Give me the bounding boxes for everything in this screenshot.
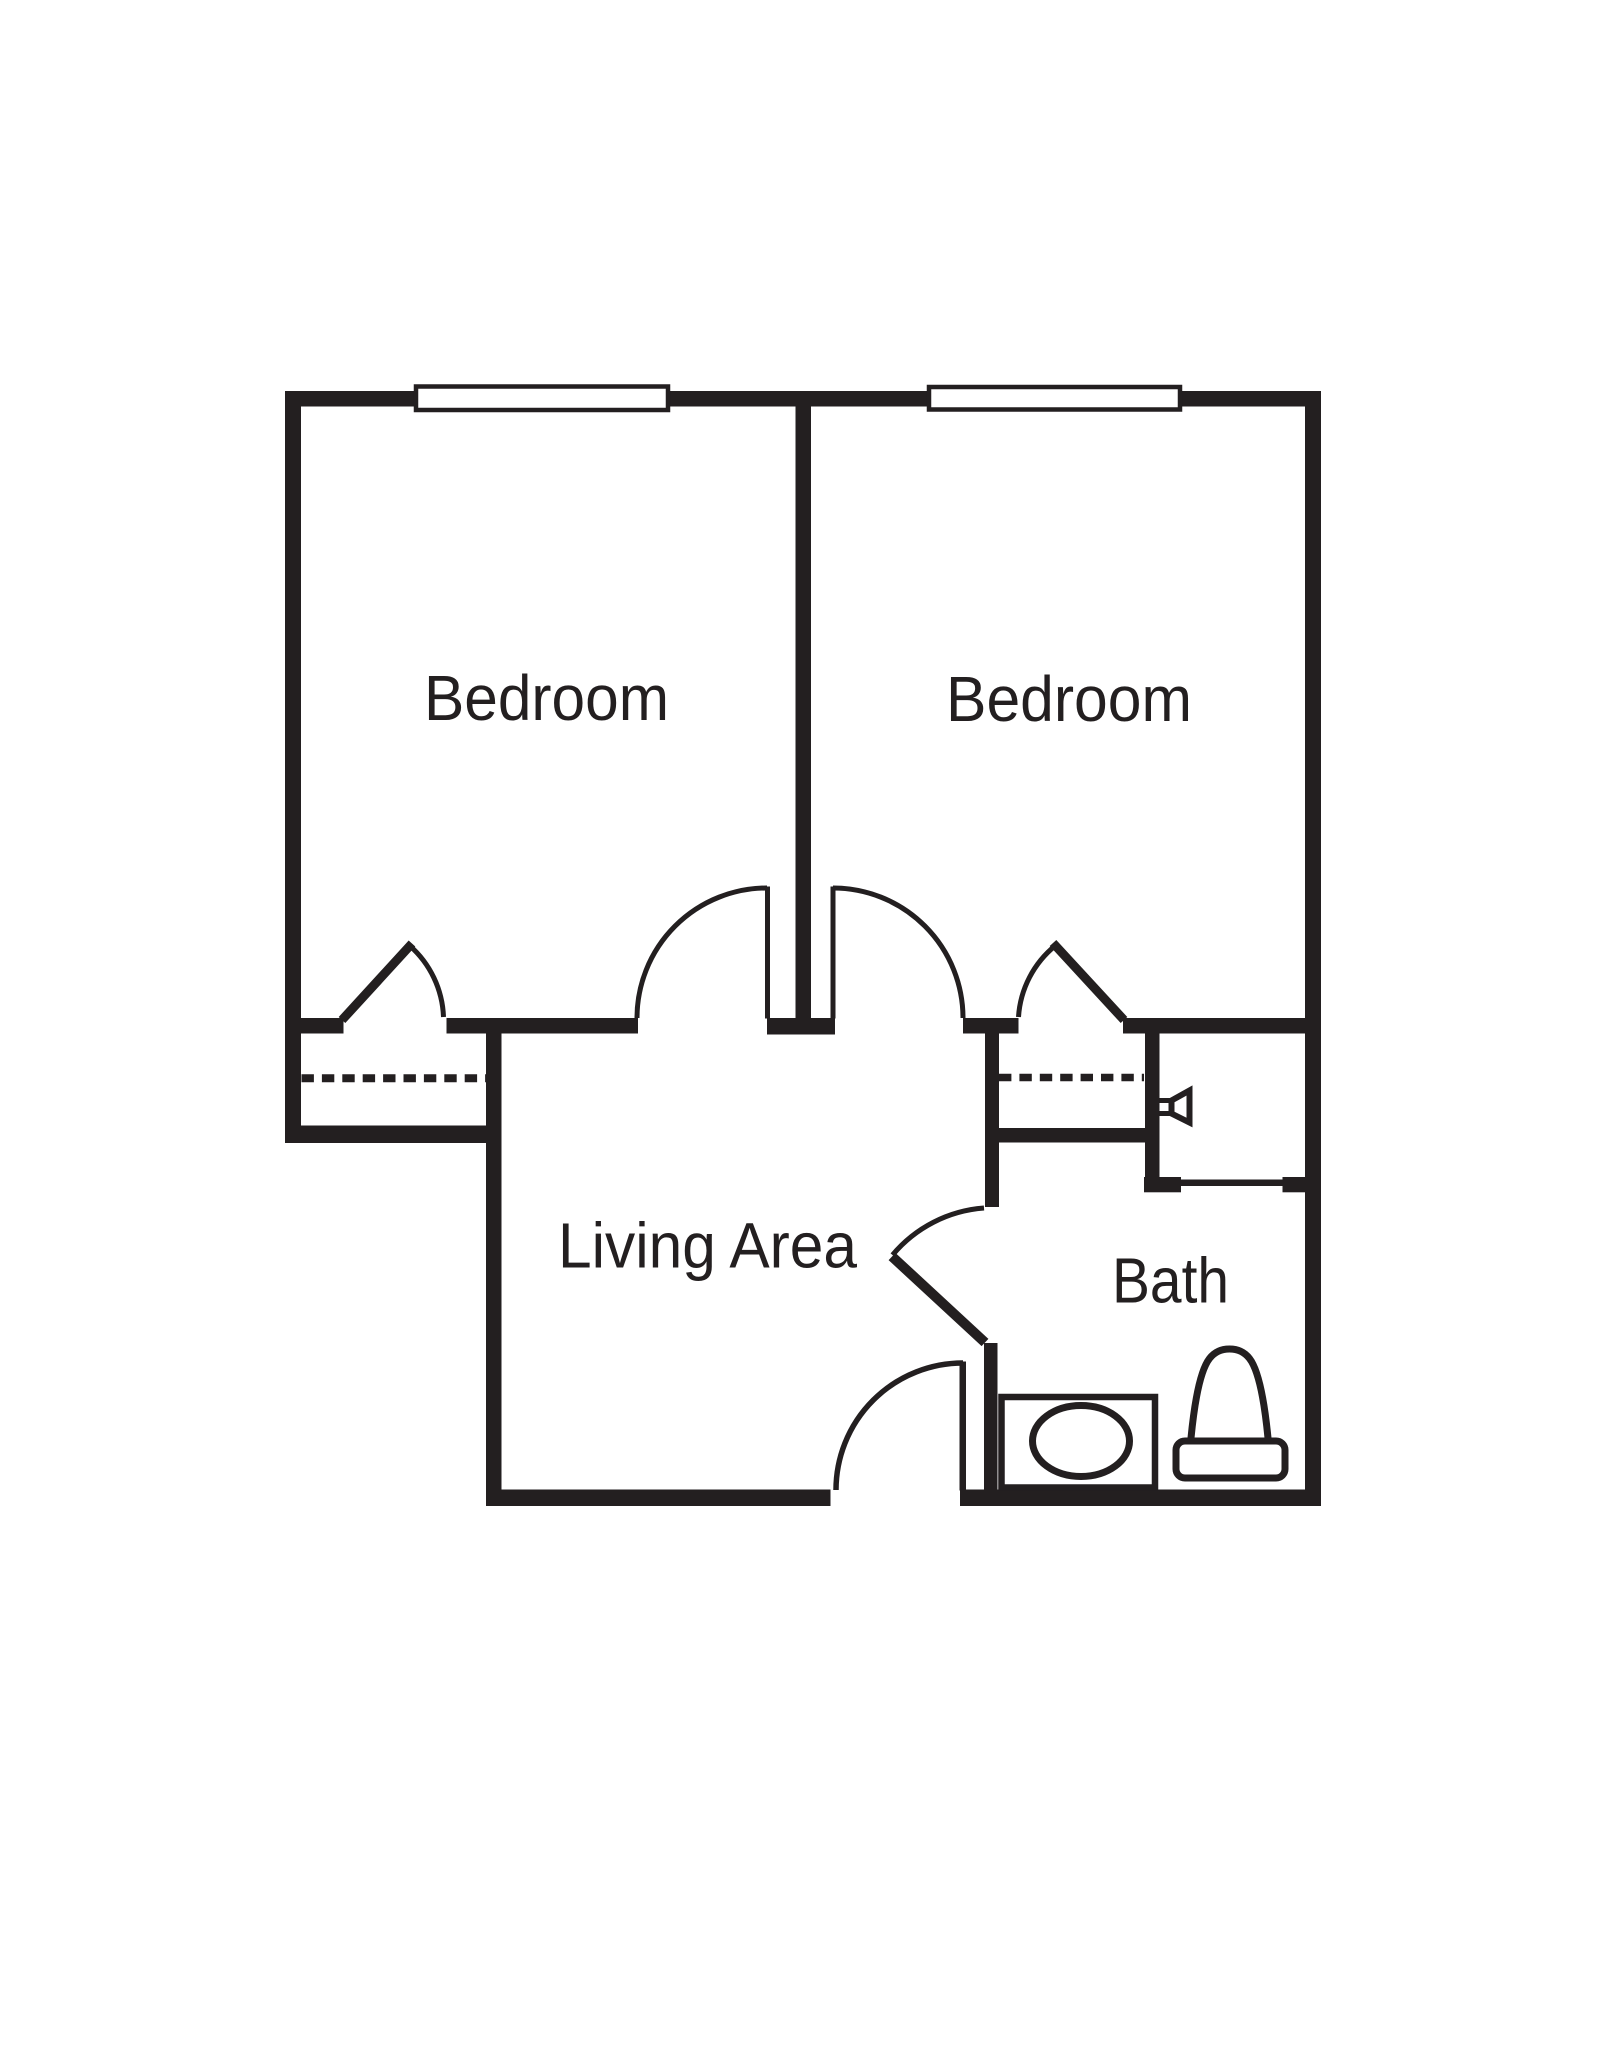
- svg-text:Bedroom: Bedroom: [424, 662, 669, 734]
- svg-text:Bath: Bath: [1112, 1245, 1229, 1317]
- svg-text:Living Area: Living Area: [558, 1210, 857, 1282]
- svg-text:Bedroom: Bedroom: [946, 663, 1192, 735]
